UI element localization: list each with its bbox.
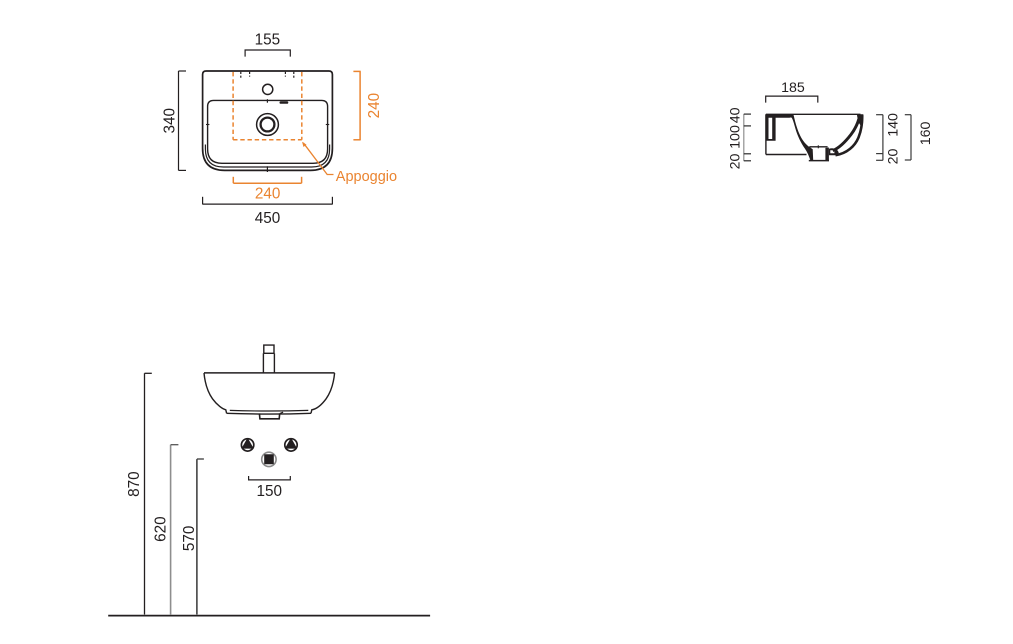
svg-text:870: 870 — [126, 471, 143, 497]
svg-text:20: 20 — [886, 149, 902, 165]
svg-text:620: 620 — [153, 516, 170, 542]
svg-text:240: 240 — [366, 93, 383, 119]
svg-text:185: 185 — [781, 80, 805, 96]
svg-text:150: 150 — [257, 483, 283, 500]
svg-text:450: 450 — [255, 210, 281, 227]
svg-text:Appoggio: Appoggio — [336, 169, 397, 185]
svg-text:160: 160 — [918, 121, 934, 145]
svg-text:570: 570 — [181, 526, 198, 552]
svg-text:40: 40 — [728, 107, 744, 123]
svg-text:140: 140 — [886, 113, 902, 137]
svg-text:100: 100 — [728, 125, 744, 149]
svg-text:20: 20 — [728, 154, 744, 170]
svg-text:240: 240 — [255, 185, 281, 202]
svg-text:340: 340 — [162, 108, 179, 134]
svg-text:155: 155 — [255, 32, 281, 49]
